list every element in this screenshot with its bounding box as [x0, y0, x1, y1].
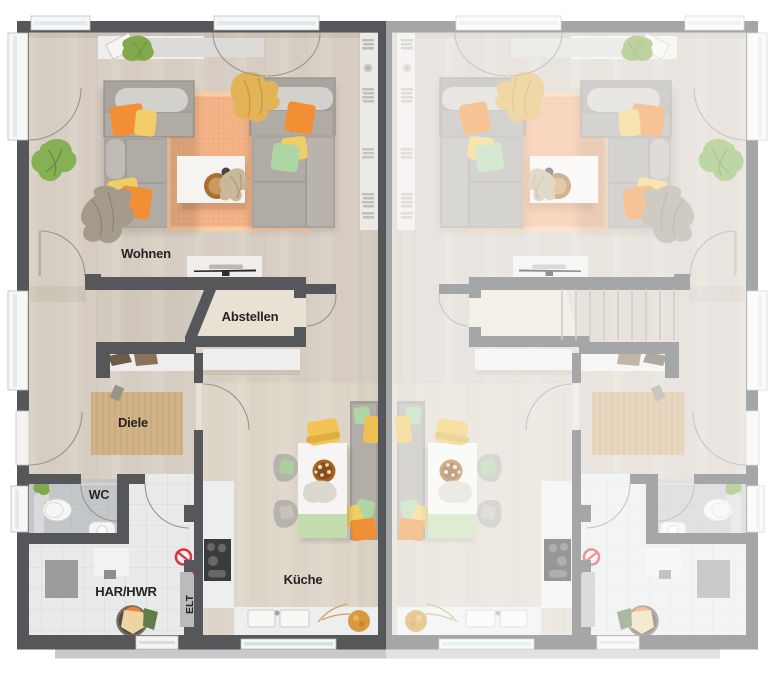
svg-text:Diele: Diele	[118, 415, 148, 430]
svg-text:ELT: ELT	[184, 594, 196, 614]
svg-text:WC: WC	[89, 488, 110, 502]
svg-text:Küche: Küche	[284, 572, 323, 587]
svg-text:Abstellen: Abstellen	[222, 309, 279, 324]
svg-text:Wohnen: Wohnen	[121, 246, 171, 261]
svg-text:HAR/HWR: HAR/HWR	[95, 584, 157, 599]
